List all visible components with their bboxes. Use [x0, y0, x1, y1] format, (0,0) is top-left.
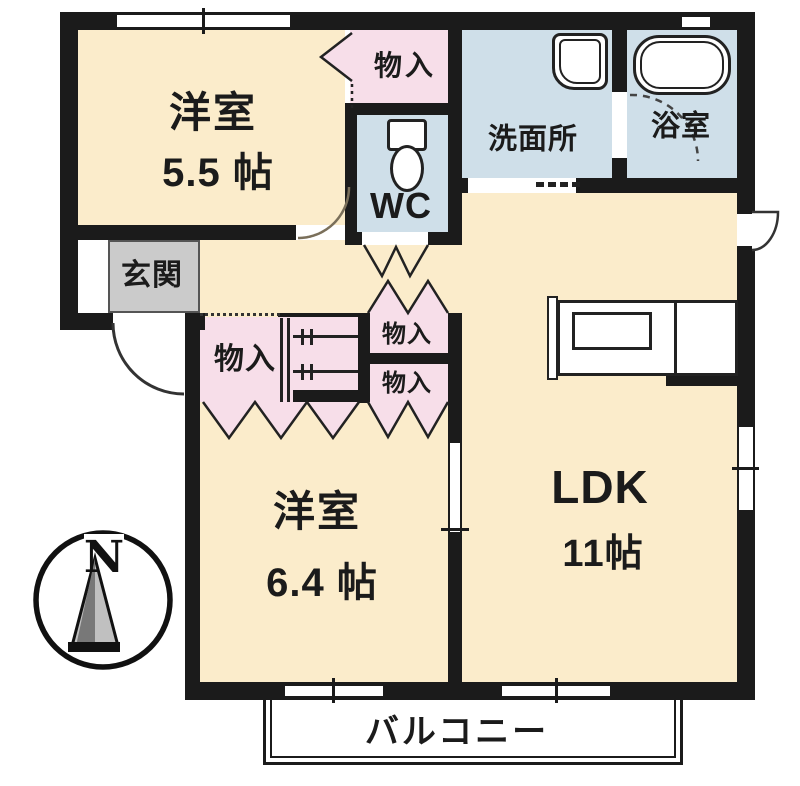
- wall: [612, 30, 627, 92]
- slide-track-dash: [548, 182, 556, 187]
- right-wall-door-opening: [737, 214, 755, 246]
- closet-right-top-label: 物入: [382, 323, 432, 347]
- ldk-floor: [462, 193, 737, 682]
- compass-north-label: N: [84, 532, 124, 583]
- slide-track-dash: [560, 182, 568, 187]
- kitchen-sink: [572, 312, 652, 350]
- bathtub-inner: [640, 41, 724, 89]
- shelf-tick: [310, 329, 313, 345]
- wall: [448, 30, 462, 243]
- shelf-tick: [301, 364, 304, 380]
- compass-needle-base: [68, 642, 120, 652]
- bathroom-label: 浴室: [651, 113, 711, 142]
- north-compass: N: [36, 532, 170, 667]
- sliding-door-tick: [441, 528, 469, 531]
- balcony-label: バルコニー: [365, 715, 549, 749]
- bedroom-top-size: 5.5 帖: [162, 153, 274, 193]
- window: [680, 15, 712, 29]
- compass-needle-shade: [76, 558, 95, 646]
- washbasin-inner: [559, 39, 601, 84]
- window-tick: [202, 8, 205, 34]
- wall: [293, 390, 360, 403]
- entrance-label: 玄関: [121, 261, 183, 291]
- hall-bedroom-bottom-floor: [200, 240, 462, 682]
- wall: [368, 353, 448, 364]
- wall: [278, 313, 360, 317]
- wall: [448, 313, 462, 445]
- wc-label: WC: [370, 188, 432, 224]
- wall: [185, 313, 200, 690]
- compass-n-backing: [84, 534, 124, 576]
- shelf-tick: [301, 329, 304, 345]
- bedroom-ldk-sliding-door: [448, 443, 462, 532]
- closet-upper-label: 物入: [374, 52, 436, 80]
- entrance-door-arc: [113, 323, 184, 394]
- closet-middle-label: 物入: [214, 345, 276, 375]
- compass-needle-icon: [72, 558, 118, 646]
- ldk-size: 11帖: [562, 535, 643, 573]
- wc-door-opening: [362, 232, 428, 245]
- bedroom-top-label: 洋室: [169, 92, 257, 134]
- bedroom-bottom-label: 洋室: [273, 491, 361, 533]
- wall: [60, 12, 78, 330]
- slide-track-dash: [536, 182, 544, 187]
- bedroom-top-door-opening: [296, 225, 345, 240]
- slide-track-dash: [572, 182, 580, 187]
- closet-right-bottom-label: 物入: [382, 372, 432, 396]
- ldk-label: LDK: [551, 464, 649, 510]
- wall: [345, 103, 357, 245]
- entrance-step: [78, 240, 108, 313]
- window-tick: [732, 467, 759, 470]
- floor-plan: N 洋室 5.5 帖 物入 WC 洗面所 浴室 玄関 物入 物入 物入 洋室 6…: [0, 0, 800, 786]
- closet-partition-line: [280, 318, 283, 402]
- kitchen-divider: [674, 301, 677, 375]
- entrance-door-opening: [113, 313, 185, 330]
- wall: [448, 530, 462, 684]
- closet-partition-line: [287, 318, 290, 402]
- bedroom-bottom-size: 6.4 帖: [266, 563, 378, 603]
- closet-dotted-edge: [200, 313, 280, 316]
- right-wall-door-swing: [752, 212, 778, 250]
- wall: [345, 103, 455, 115]
- wall: [737, 12, 755, 700]
- shelf-tick: [310, 364, 313, 380]
- washroom-label: 洗面所: [488, 126, 578, 155]
